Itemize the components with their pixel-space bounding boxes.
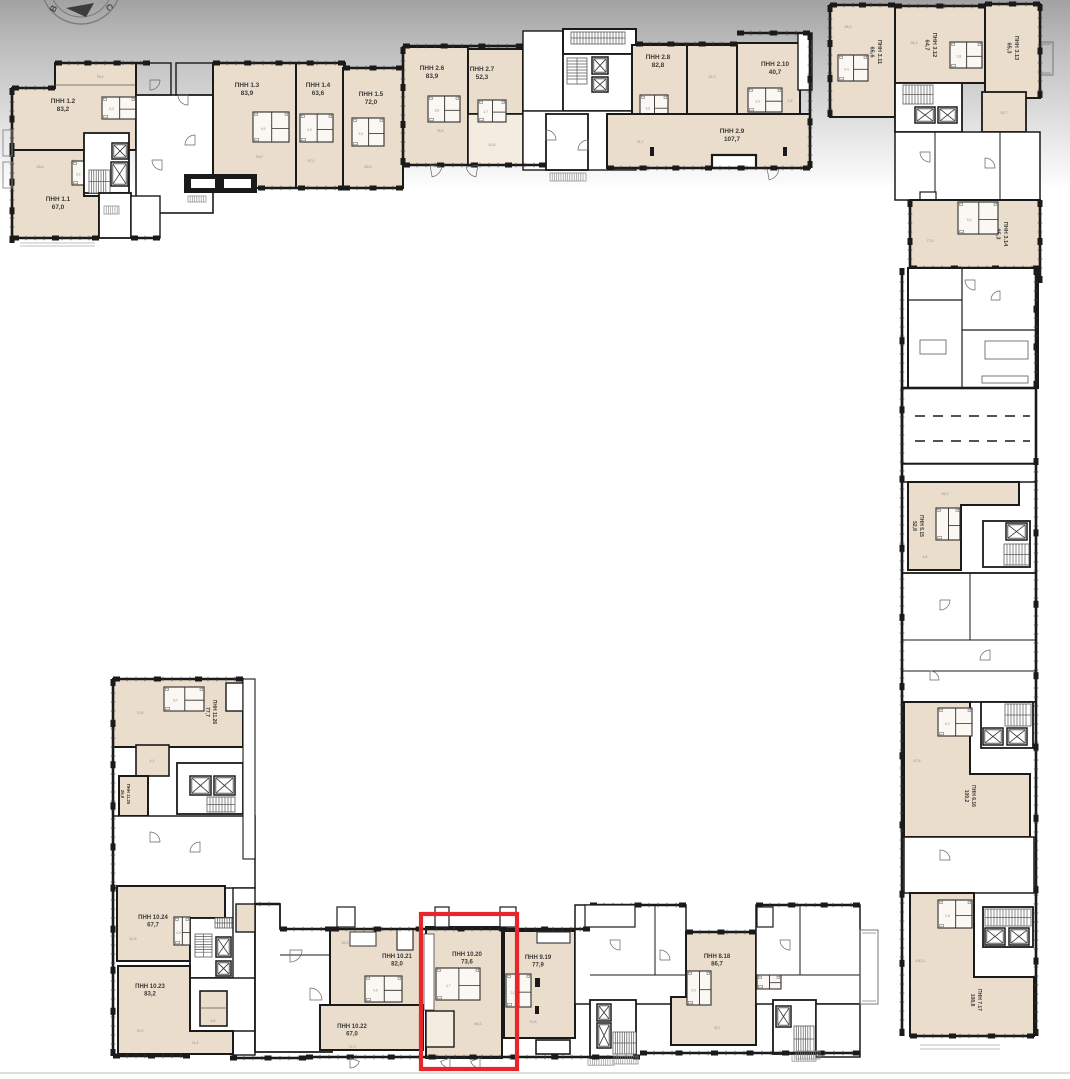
svg-text:70,6: 70,6 — [137, 711, 144, 715]
svg-text:46,2: 46,2 — [942, 492, 949, 496]
svg-text:82,0: 82,0 — [391, 962, 403, 968]
svg-text:18,6: 18,6 — [37, 165, 44, 169]
svg-text:4,6: 4,6 — [923, 555, 928, 559]
svg-text:ПНН 2.10: ПНН 2.10 — [761, 61, 789, 68]
svg-text:83,9: 83,9 — [426, 73, 439, 80]
svg-text:4,9: 4,9 — [307, 128, 312, 132]
svg-text:83,2: 83,2 — [57, 106, 70, 113]
svg-text:4,7: 4,7 — [483, 110, 488, 114]
svg-text:92,3: 92,3 — [709, 75, 716, 79]
svg-text:ПНН 3.11: ПНН 3.11 — [876, 40, 882, 64]
svg-text:5,8: 5,8 — [211, 1019, 216, 1023]
svg-text:5,0: 5,0 — [173, 698, 178, 702]
svg-text:61,8: 61,8 — [130, 937, 137, 941]
svg-text:107,7: 107,7 — [724, 136, 740, 143]
svg-text:ПНН 5.15: ПНН 5.15 — [918, 515, 924, 537]
svg-text:2,6: 2,6 — [945, 914, 950, 918]
svg-text:ПНН 9.19: ПНН 9.19 — [525, 955, 552, 961]
svg-text:5,6: 5,6 — [645, 106, 650, 110]
svg-text:ПНН 2.7: ПНН 2.7 — [470, 66, 495, 73]
svg-text:71,9: 71,9 — [349, 1045, 356, 1049]
svg-text:4,4: 4,4 — [844, 68, 849, 72]
svg-text:2,0: 2,0 — [511, 991, 516, 995]
svg-text:63,6: 63,6 — [312, 90, 325, 97]
svg-text:97,0: 97,0 — [308, 159, 315, 163]
svg-text:43,6: 43,6 — [489, 143, 496, 147]
svg-text:3,9: 3,9 — [755, 99, 760, 103]
svg-text:4,9: 4,9 — [176, 931, 181, 935]
svg-text:26,9: 26,9 — [120, 790, 125, 799]
svg-text:ПНН 8.18: ПНН 8.18 — [704, 954, 731, 960]
svg-text:ПНН 11.26: ПНН 11.26 — [211, 700, 217, 725]
svg-text:ПНН 1.1: ПНН 1.1 — [46, 196, 71, 203]
svg-text:4,9: 4,9 — [373, 989, 378, 993]
svg-text:4,9: 4,9 — [261, 127, 266, 131]
svg-text:4,7: 4,7 — [446, 984, 451, 988]
svg-text:109,2: 109,2 — [963, 790, 969, 803]
svg-text:78,7: 78,7 — [714, 1026, 721, 1030]
svg-text:ПНН 3.14: ПНН 3.14 — [1002, 222, 1008, 247]
svg-text:ПНН 3.12: ПНН 3.12 — [931, 33, 937, 58]
svg-text:67,0: 67,0 — [52, 204, 65, 211]
svg-text:4,1: 4,1 — [150, 759, 155, 763]
svg-text:ПНН 10.21: ПНН 10.21 — [382, 954, 412, 960]
svg-text:77,9: 77,9 — [532, 963, 544, 969]
svg-text:82,8: 82,8 — [652, 62, 665, 69]
svg-text:5,2: 5,2 — [945, 722, 950, 726]
svg-text:100,3: 100,3 — [916, 959, 925, 963]
svg-text:ПНН 1.3: ПНН 1.3 — [235, 82, 260, 89]
svg-text:ПНН 10.24: ПНН 10.24 — [138, 915, 168, 921]
svg-text:67,8: 67,8 — [914, 759, 921, 763]
svg-text:66,3: 66,3 — [475, 1022, 482, 1026]
svg-text:67,7: 67,7 — [147, 923, 159, 929]
svg-text:5,0: 5,0 — [691, 988, 696, 992]
svg-text:51,7: 51,7 — [1001, 111, 1008, 115]
svg-text:76,4: 76,4 — [97, 75, 104, 79]
svg-text:ПНН 2.9: ПНН 2.9 — [720, 128, 745, 135]
svg-text:58,2: 58,2 — [845, 25, 852, 29]
svg-text:76,2: 76,2 — [137, 1029, 144, 1033]
svg-text:77,7: 77,7 — [204, 707, 210, 717]
svg-text:2,8: 2,8 — [788, 99, 793, 103]
svg-text:108,8: 108,8 — [969, 994, 975, 1007]
svg-text:5,0: 5,0 — [967, 218, 972, 222]
svg-text:5,1: 5,1 — [76, 172, 81, 176]
svg-text:ПНН 3.13: ПНН 3.13 — [1013, 36, 1019, 61]
svg-text:83,2: 83,2 — [144, 992, 156, 998]
svg-text:ПНН 7.17: ПНН 7.17 — [976, 989, 982, 1011]
svg-text:86,7: 86,7 — [711, 962, 723, 968]
svg-text:74,7: 74,7 — [637, 140, 644, 144]
svg-text:76,0: 76,0 — [256, 155, 263, 159]
svg-text:5,2: 5,2 — [109, 107, 114, 111]
svg-text:70,8: 70,8 — [530, 1020, 537, 1024]
svg-text:77,5: 77,5 — [927, 239, 934, 243]
svg-text:ПНН 11.25: ПНН 11.25 — [126, 784, 131, 805]
svg-text:40,7: 40,7 — [769, 69, 782, 76]
svg-text:73,6: 73,6 — [461, 960, 473, 966]
svg-text:72,0: 72,0 — [365, 99, 378, 106]
svg-text:6,8: 6,8 — [435, 109, 440, 113]
svg-text:2,8: 2,8 — [957, 55, 962, 59]
svg-text:65,6: 65,6 — [869, 47, 875, 58]
svg-text:83,9: 83,9 — [241, 90, 254, 97]
svg-text:ПНН 1.5: ПНН 1.5 — [359, 91, 384, 98]
svg-text:56,1: 56,1 — [911, 41, 918, 45]
svg-text:39,5: 39,5 — [342, 941, 349, 945]
svg-text:64,7: 64,7 — [924, 40, 930, 51]
svg-text:ПНН 10.23: ПНН 10.23 — [135, 984, 165, 990]
svg-text:76,9: 76,9 — [437, 129, 444, 133]
svg-text:ПНН 2.6: ПНН 2.6 — [420, 65, 445, 72]
svg-text:ПНН 10.20: ПНН 10.20 — [452, 952, 482, 958]
svg-text:65,3: 65,3 — [1006, 43, 1012, 54]
svg-text:74,3: 74,3 — [192, 1041, 199, 1045]
svg-text:ПНН 1.2: ПНН 1.2 — [51, 98, 76, 105]
svg-text:ПНН 1.4: ПНН 1.4 — [306, 82, 331, 89]
svg-text:67,0: 67,0 — [346, 1032, 358, 1038]
svg-text:ПНН 6.16: ПНН 6.16 — [970, 785, 976, 807]
svg-text:ПНН 10.22: ПНН 10.22 — [337, 1024, 367, 1030]
svg-text:52,8: 52,8 — [911, 521, 917, 531]
svg-text:ПНН 2.8: ПНН 2.8 — [646, 54, 671, 61]
svg-text:52,3: 52,3 — [476, 74, 489, 81]
svg-text:5,3: 5,3 — [359, 132, 364, 136]
svg-text:63,5: 63,5 — [365, 165, 372, 169]
